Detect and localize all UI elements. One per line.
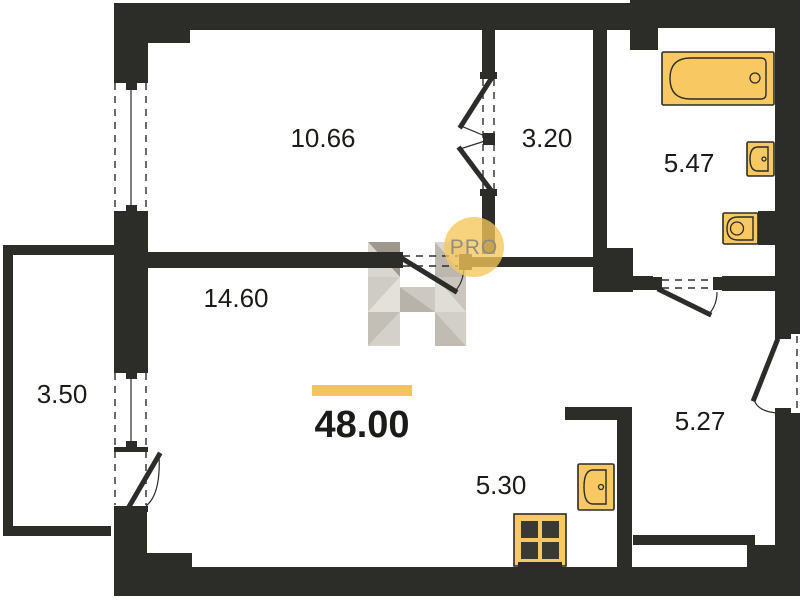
pro-watermark: PRO bbox=[444, 217, 504, 277]
wall bbox=[593, 25, 607, 250]
stove-burner bbox=[542, 521, 559, 538]
bathroom-sink-icon bbox=[747, 142, 774, 176]
wall-cap bbox=[126, 441, 137, 447]
wall bbox=[617, 420, 632, 570]
wall-cap bbox=[713, 277, 722, 290]
floorplan-svg: 10.663.205.4714.603.505.305.2748.00PRO bbox=[0, 0, 803, 600]
wall bbox=[722, 276, 775, 291]
wall-cap bbox=[114, 211, 148, 217]
wall bbox=[633, 535, 755, 545]
wall bbox=[114, 512, 147, 596]
wall bbox=[148, 252, 402, 268]
wall bbox=[3, 245, 115, 255]
bathtub-icon-drain bbox=[750, 73, 760, 83]
wall-cap bbox=[483, 133, 495, 145]
toilet-icon-drain bbox=[731, 222, 744, 235]
wall-cap bbox=[775, 333, 791, 339]
wall bbox=[565, 407, 632, 420]
wall-cap bbox=[480, 72, 497, 79]
bathtub-icon bbox=[662, 52, 774, 105]
total-area-label: 48.00 bbox=[314, 404, 409, 446]
wall bbox=[190, 567, 800, 596]
wall-cap bbox=[126, 205, 137, 212]
wall bbox=[188, 3, 630, 30]
total-area-accent-bar bbox=[312, 385, 412, 396]
floorplan-canvas: 10.663.205.4714.603.505.305.2748.00PRO bbox=[0, 0, 803, 600]
wall bbox=[148, 3, 190, 43]
wall-cap bbox=[114, 447, 148, 452]
wall-cap bbox=[114, 77, 148, 83]
kitchen-sink-icon-drain bbox=[599, 485, 604, 490]
room-label-room-bottom-right: 5.27 bbox=[675, 406, 726, 436]
room-label-bathroom: 5.47 bbox=[664, 148, 715, 178]
stove-icon bbox=[514, 514, 566, 570]
room-label-hallway: 3.20 bbox=[522, 123, 573, 153]
room-label-living-room: 14.60 bbox=[203, 283, 268, 313]
wall bbox=[633, 276, 653, 290]
toilet-icon bbox=[723, 213, 758, 244]
room-label-balcony: 3.50 bbox=[37, 379, 88, 409]
wall bbox=[630, 0, 800, 28]
stove-base bbox=[518, 562, 562, 570]
bathroom-sink-icon-drain bbox=[762, 157, 766, 161]
room-label-room-top-left: 10.66 bbox=[290, 123, 355, 153]
wall bbox=[593, 248, 633, 292]
wall bbox=[758, 211, 775, 245]
wall bbox=[630, 28, 658, 50]
wall bbox=[147, 553, 192, 596]
kitchen-sink-icon bbox=[578, 464, 614, 510]
wall bbox=[114, 3, 148, 78]
stove-burner bbox=[521, 542, 538, 559]
wall-cap bbox=[114, 367, 148, 373]
stove-burner bbox=[542, 542, 559, 559]
wall bbox=[775, 28, 800, 334]
pro-watermark-text: PRO bbox=[450, 236, 499, 259]
wall bbox=[482, 30, 495, 73]
wall bbox=[747, 545, 775, 569]
wall bbox=[3, 245, 13, 536]
wall bbox=[114, 216, 148, 367]
wall bbox=[3, 526, 111, 536]
stove-burner bbox=[521, 521, 538, 538]
room-label-kitchen: 5.30 bbox=[476, 470, 527, 500]
